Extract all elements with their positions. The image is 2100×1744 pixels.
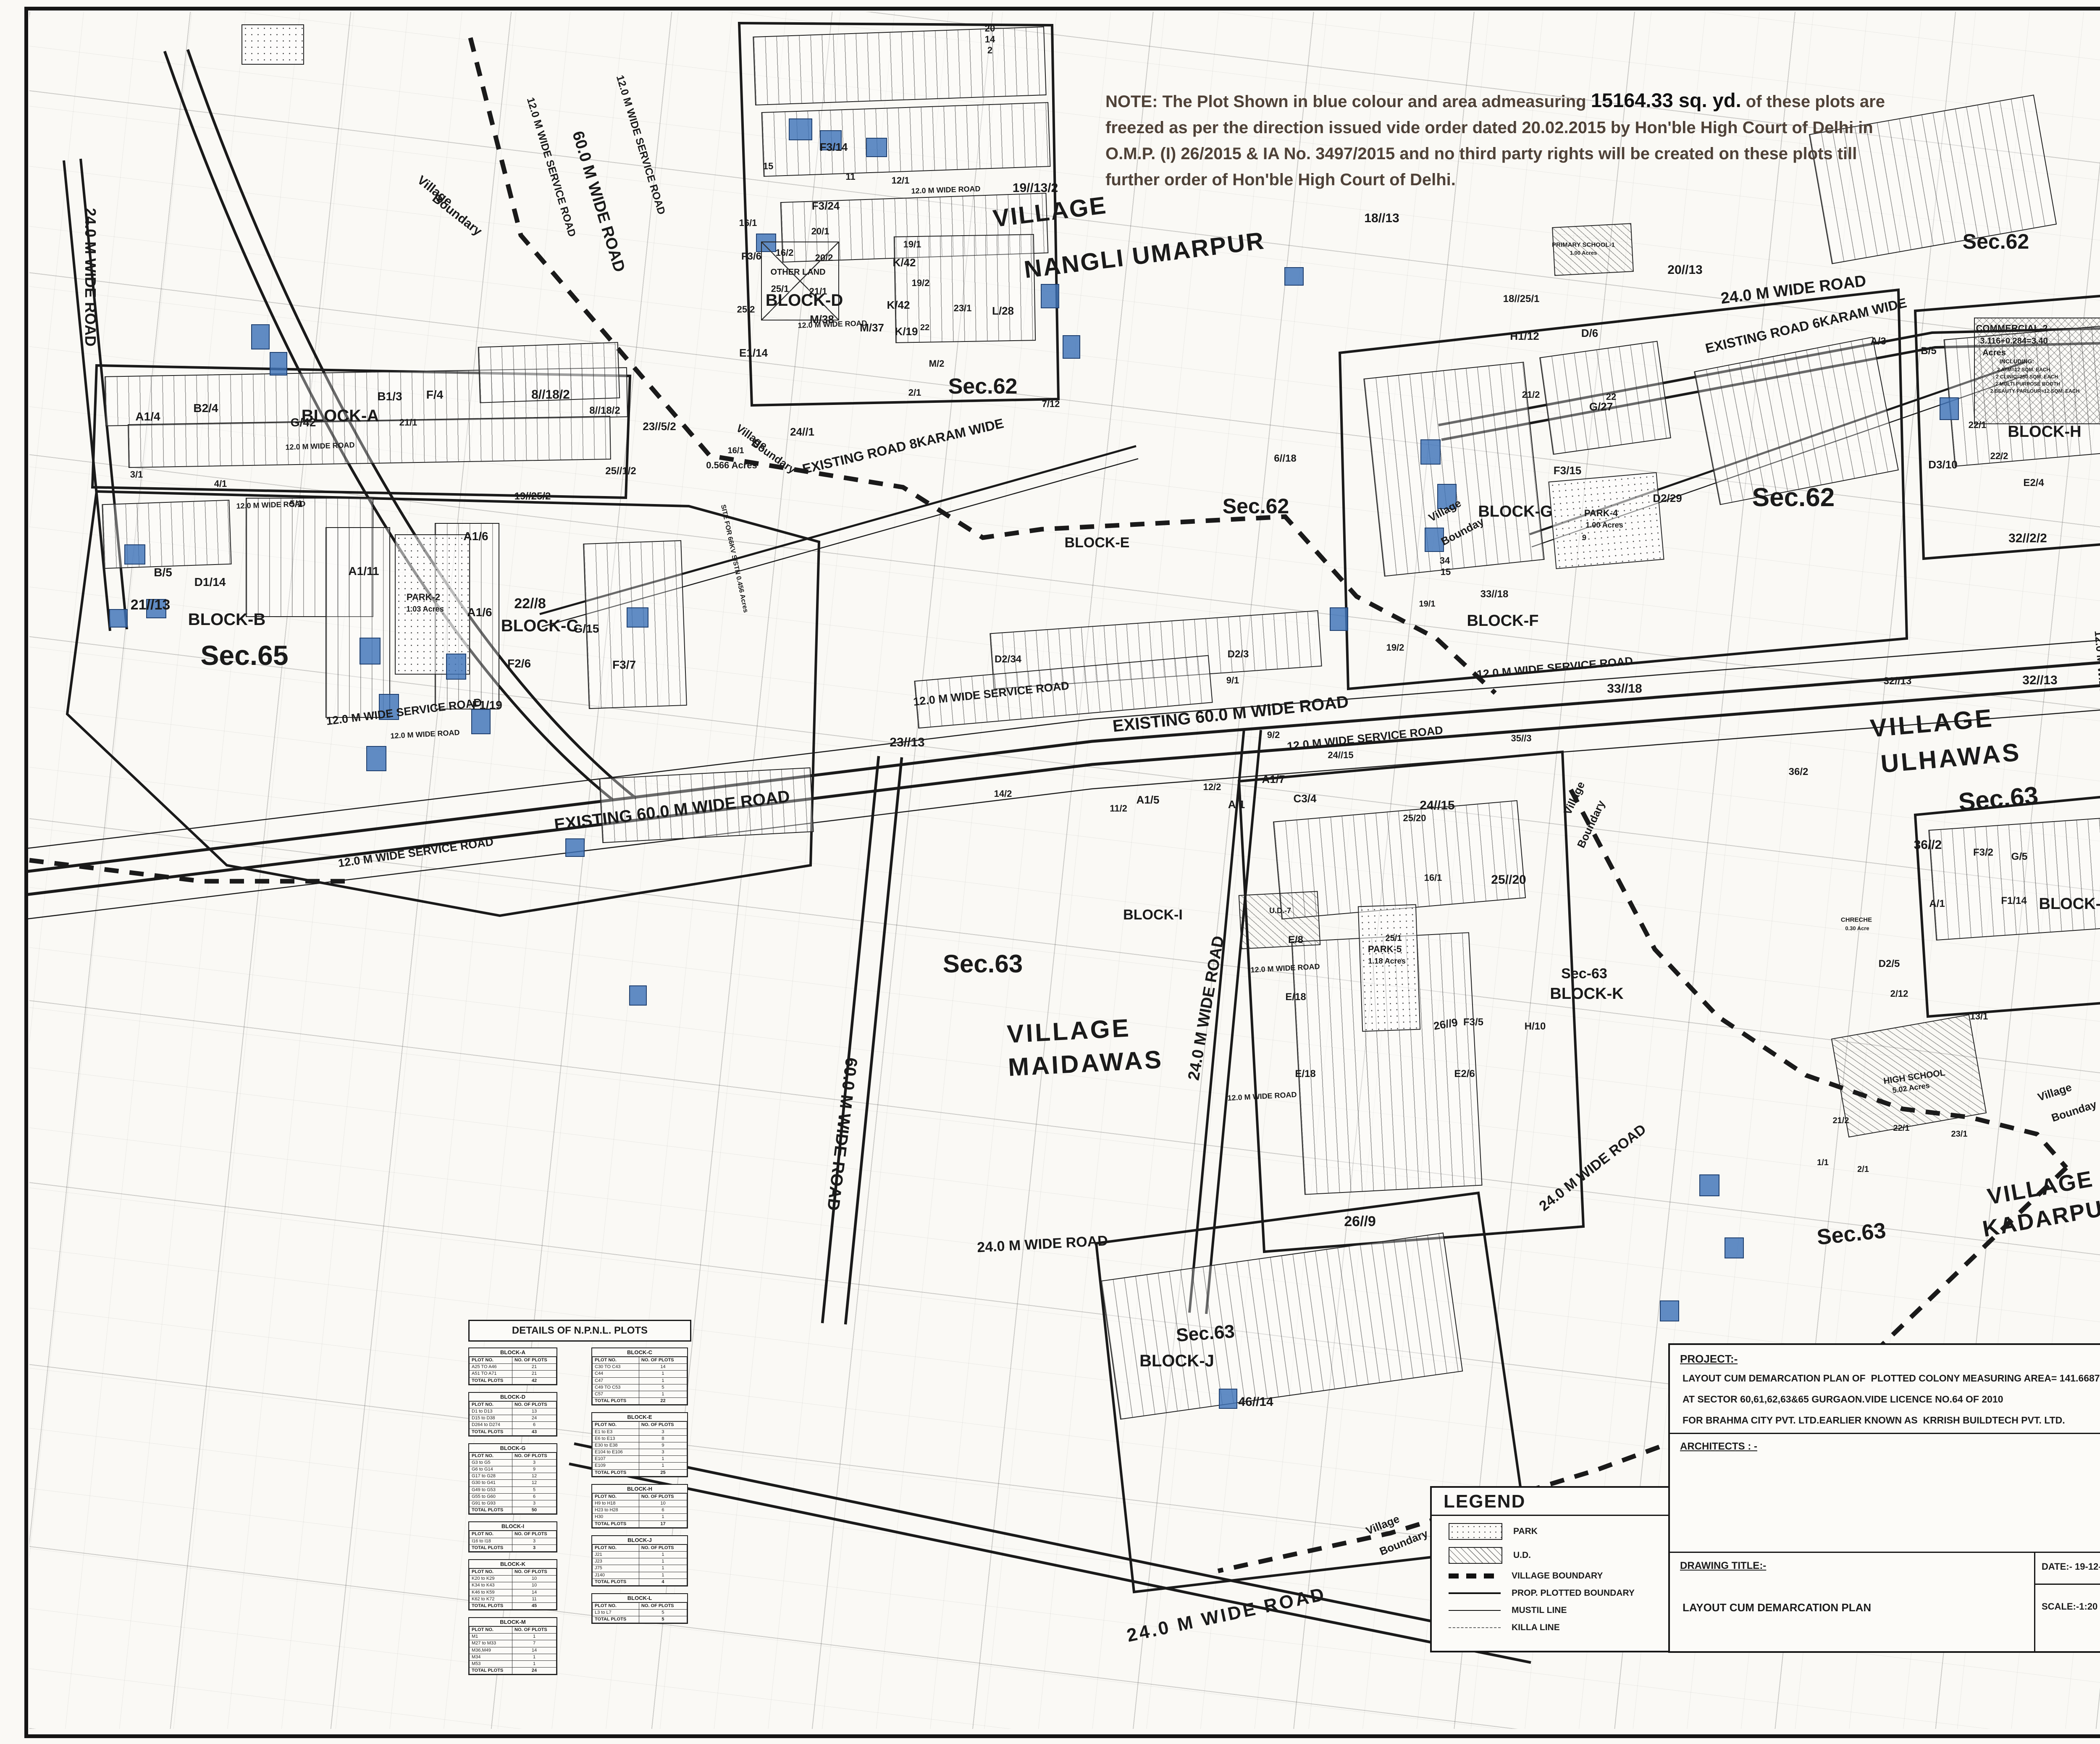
sheet-border <box>24 7 2100 1738</box>
layout-demarcation-plan-sheet: VILLAGENANGLI UMARPURVILLAGEULHAWASSec.6… <box>0 0 2100 1744</box>
